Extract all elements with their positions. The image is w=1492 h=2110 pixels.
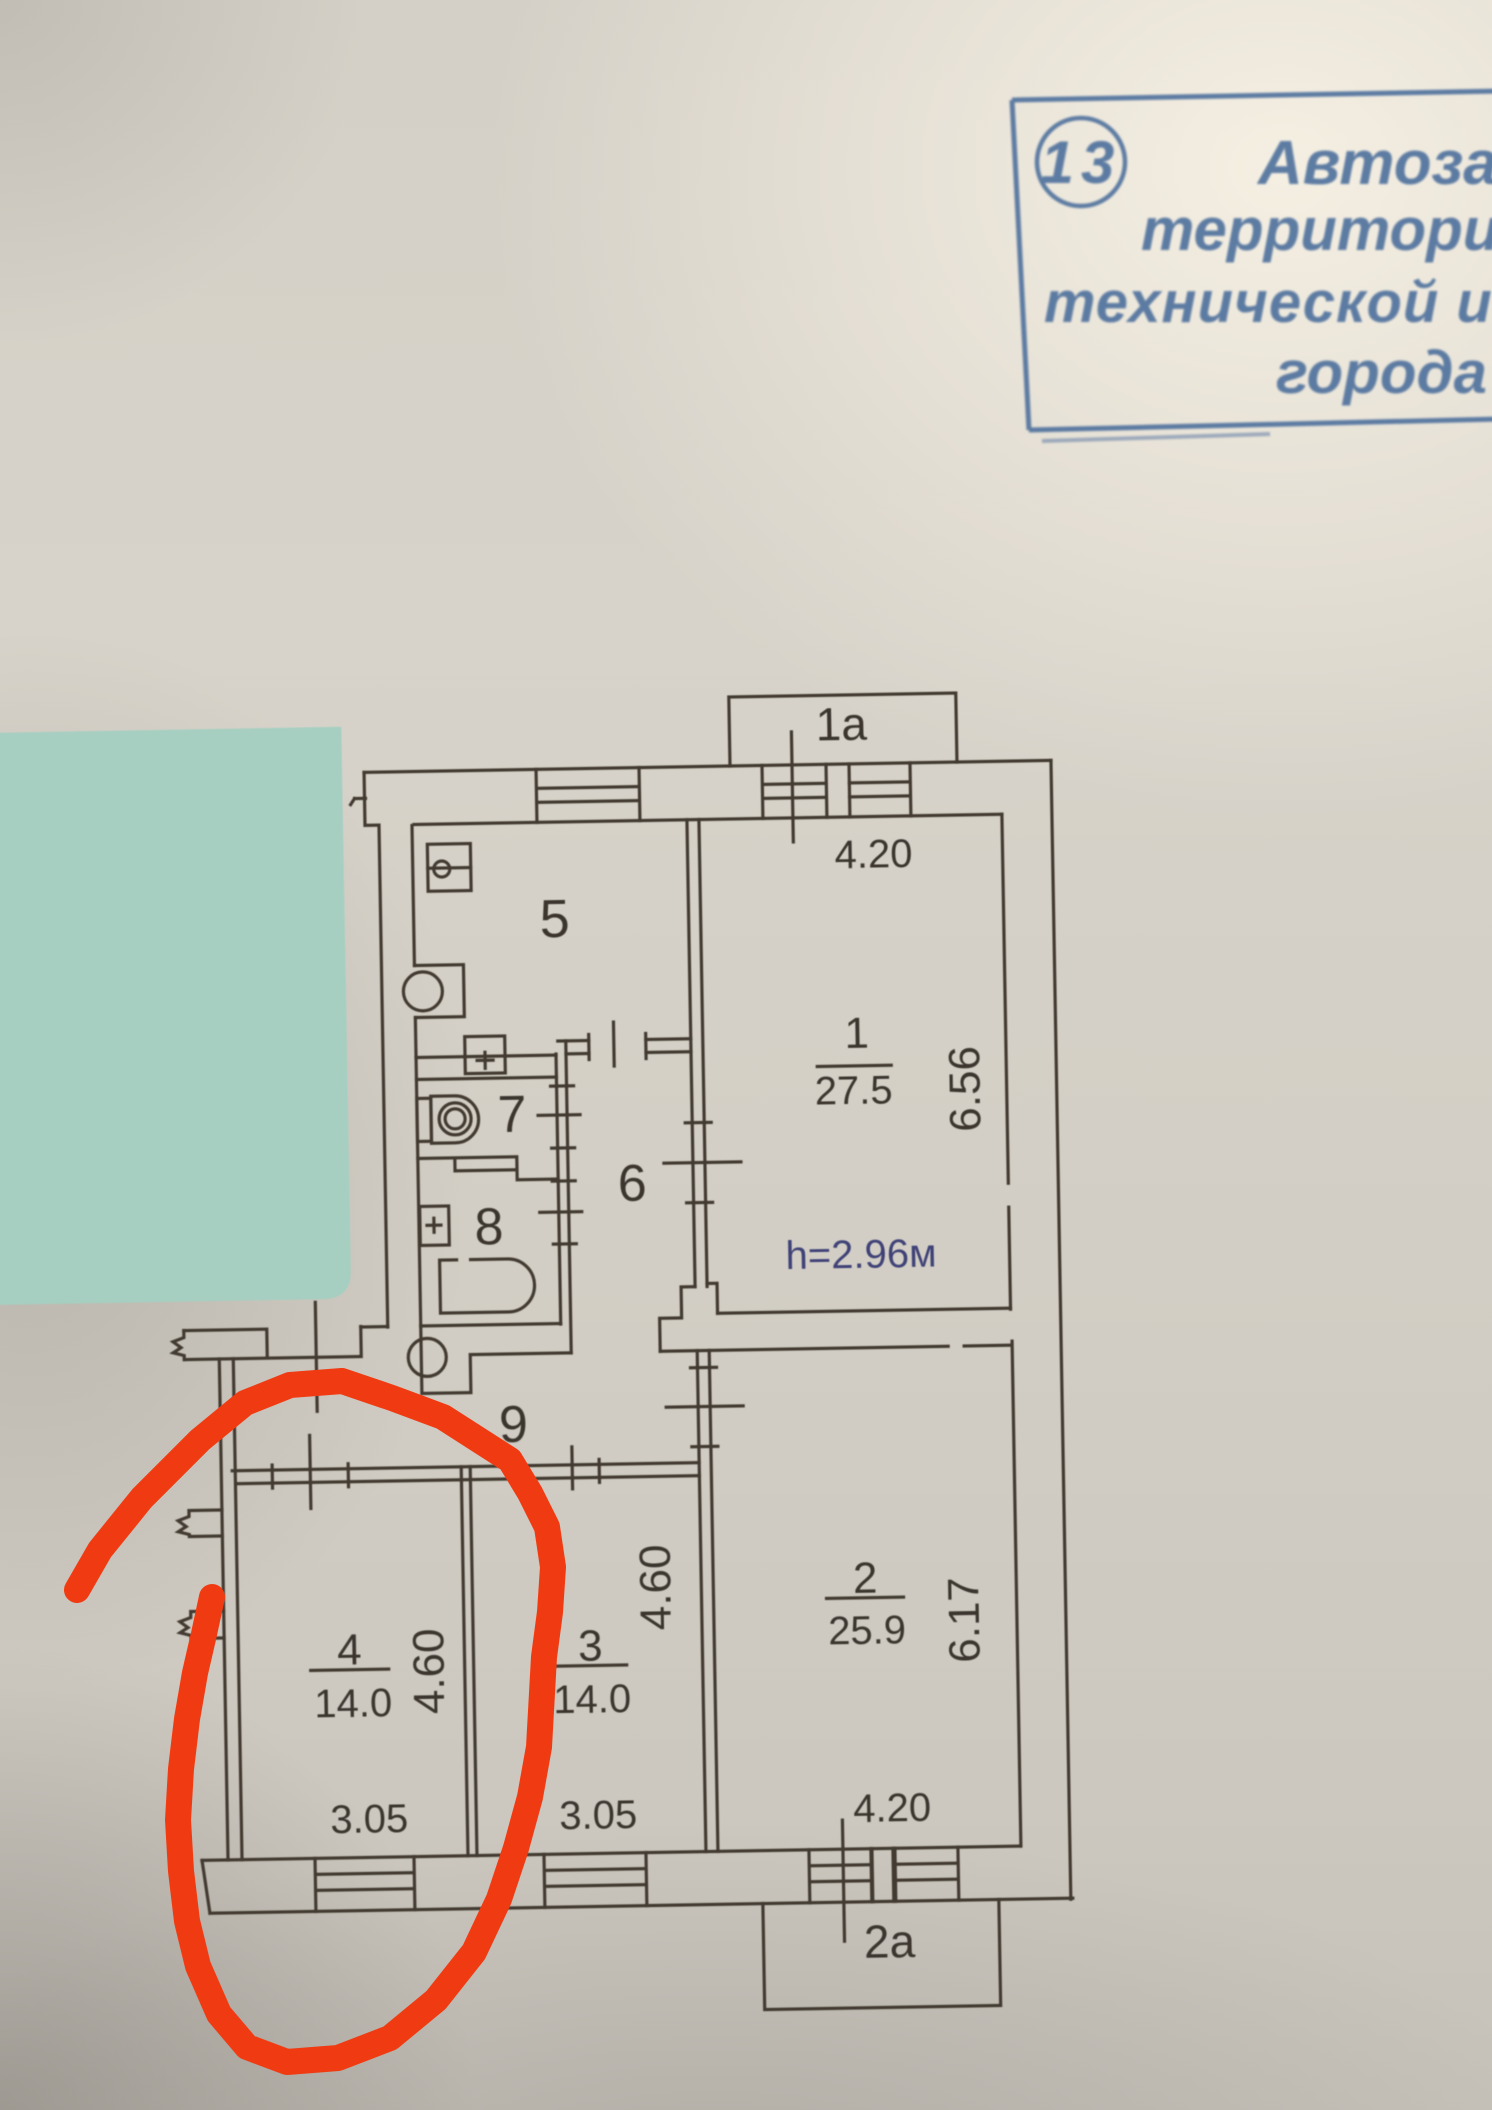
svg-text:1a: 1a [815,698,867,751]
svg-text:4.20: 4.20 [834,832,913,877]
svg-text:6.56: 6.56 [940,1046,990,1132]
svg-text:14.0: 14.0 [553,1677,632,1722]
svg-text:технической ин: технической ин [1044,270,1492,335]
svg-text:1: 1 [844,1009,869,1058]
svg-text:h=2.96м: h=2.96м [785,1231,937,1278]
svg-text:Автозаво: Автозаво [1256,129,1492,198]
svg-text:8: 8 [474,1198,504,1256]
svg-text:4.60: 4.60 [631,1544,681,1630]
svg-text:2a: 2a [864,1915,916,1968]
svg-text:4.20: 4.20 [853,1786,932,1831]
svg-text:3.05: 3.05 [330,1797,409,1842]
svg-text:25.9: 25.9 [828,1608,907,1653]
svg-text:3: 3 [578,1621,603,1670]
svg-text:территориал: территориал [1141,196,1492,263]
svg-text:5: 5 [539,889,570,950]
svg-text:4: 4 [337,1626,362,1675]
svg-text:6: 6 [617,1155,647,1213]
svg-text:6.17: 6.17 [939,1577,989,1663]
svg-text:13: 13 [1041,129,1122,196]
svg-text:7: 7 [497,1086,527,1144]
svg-text:4.60: 4.60 [404,1628,454,1714]
svg-text:города М: города М [1276,339,1492,406]
svg-text:14.0: 14.0 [314,1681,393,1726]
svg-text:3.05: 3.05 [559,1793,638,1838]
svg-text:27.5: 27.5 [814,1068,893,1113]
svg-text:2: 2 [853,1554,878,1603]
